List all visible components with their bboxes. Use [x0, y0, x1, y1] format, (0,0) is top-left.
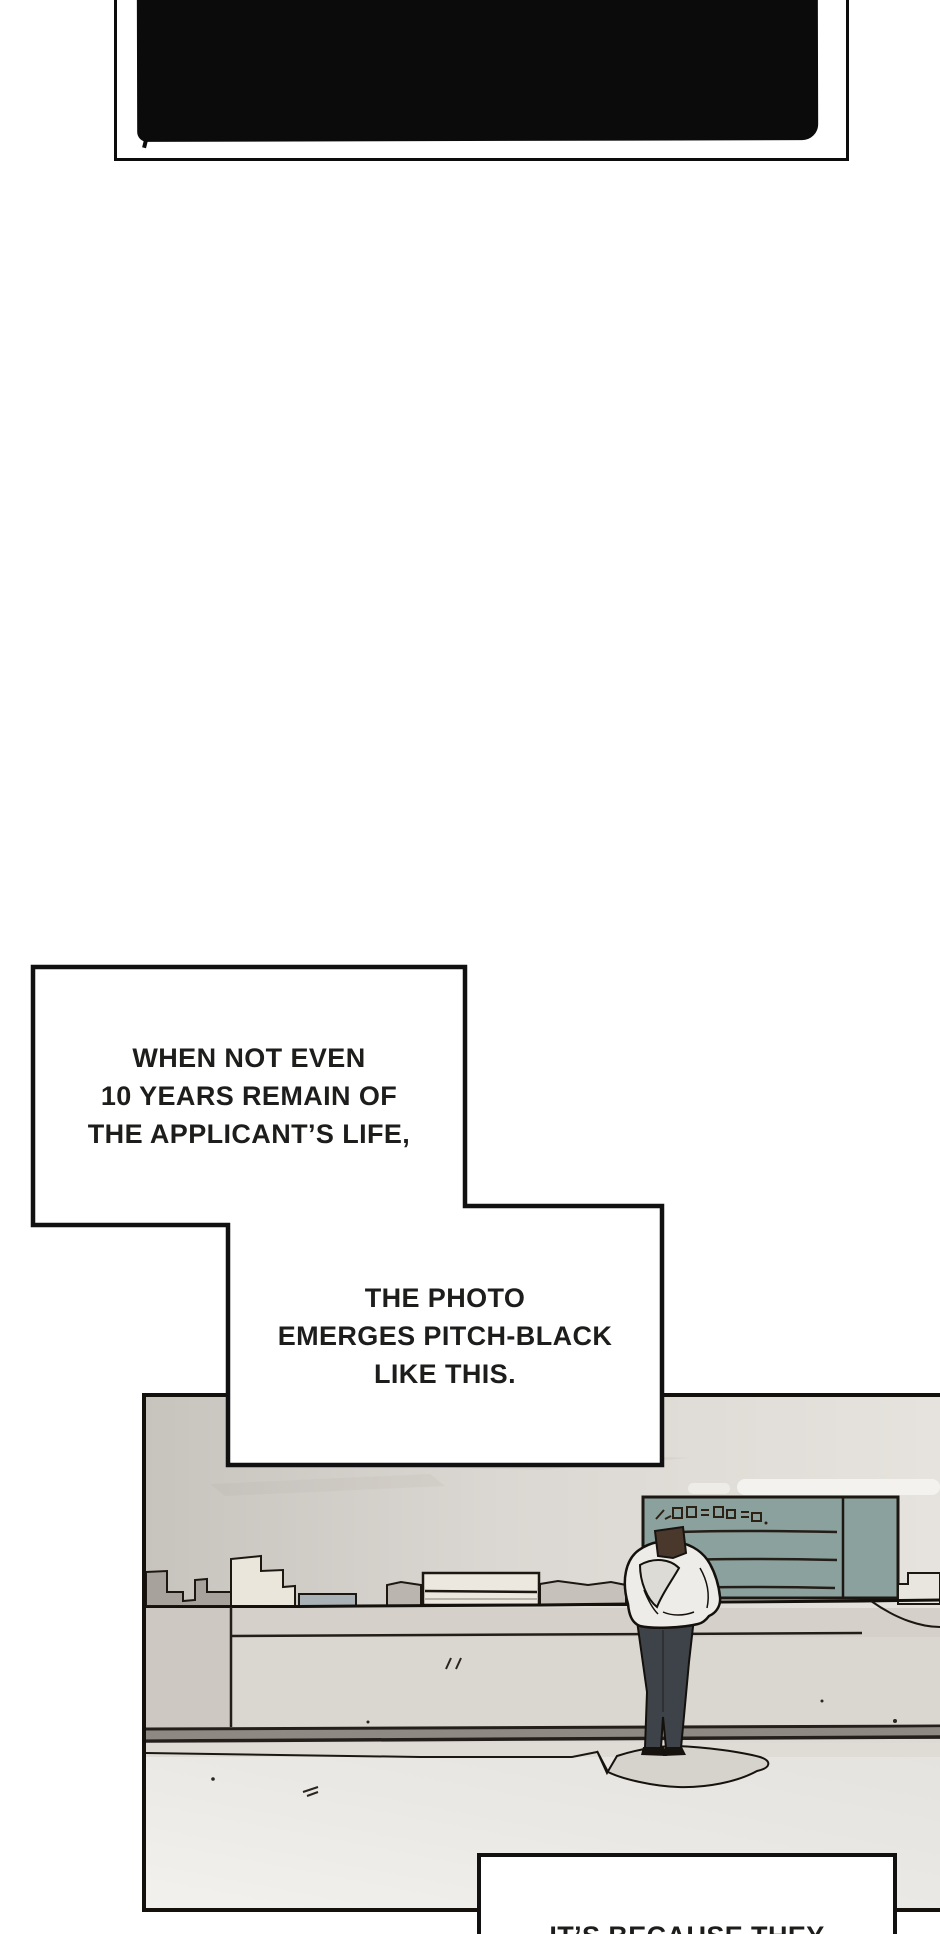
wall-light-band: [737, 1479, 940, 1495]
speech-bubble-1: WHEN NOT EVEN 10 YEARS REMAIN OF THE APP…: [33, 967, 465, 1225]
counter-left-corner-face: [146, 1608, 231, 1729]
wall-light-band: [688, 1483, 730, 1494]
person-hair: [655, 1527, 686, 1558]
bubble1-line2: 10 YEARS REMAIN OF: [101, 1077, 397, 1115]
panel-scene: [146, 1397, 940, 1908]
item-wavy-gray: [540, 1581, 626, 1605]
bubble1-line1: WHEN NOT EVEN: [132, 1039, 365, 1077]
bubble1-line3: THE APPLICANT’S LIFE,: [88, 1115, 410, 1153]
bubble3-line1: IT’S BECAUSE THEY: [477, 1917, 897, 1934]
person-shoe: [641, 1747, 667, 1756]
item-blue-box: [299, 1594, 356, 1606]
comic-page: WHEN NOT EVEN 10 YEARS REMAIN OF THE APP…: [0, 0, 940, 1934]
item-gray-box: [387, 1582, 421, 1606]
speech-bubble-2: THE PHOTO EMERGES PITCH-BLACK LIKE THIS.: [228, 1206, 662, 1465]
person-shoe: [663, 1747, 686, 1756]
bubble2-line2: EMERGES PITCH-BLACK: [278, 1317, 613, 1355]
bubble2-line1: THE PHOTO: [365, 1279, 526, 1317]
pitch-black-photo: [137, 0, 818, 142]
counter-front-lower: [146, 1637, 940, 1729]
item-long-tray: [423, 1573, 539, 1605]
bubble2-line3: LIKE THIS.: [374, 1355, 516, 1393]
